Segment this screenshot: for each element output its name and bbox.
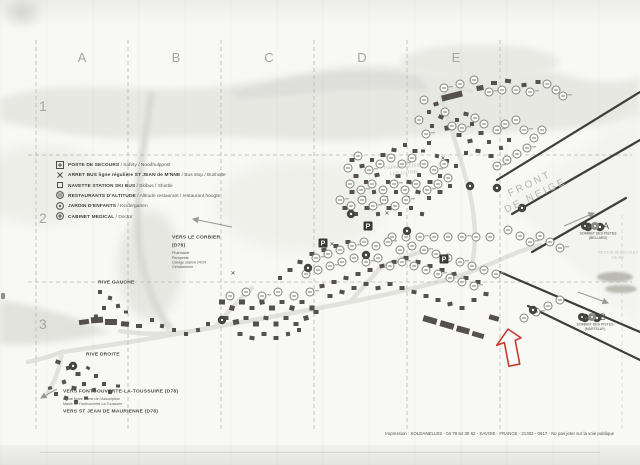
building-footprint [457,133,462,137]
residence-number-smudge [390,236,394,238]
residence-number-smudge [370,183,374,185]
building-footprint [76,372,81,376]
building-footprint [464,151,468,155]
building-footprint [286,332,291,337]
building-footprint [61,379,66,384]
building-footprint [124,311,128,314]
residence-number-smudge [514,89,518,91]
tiny-label-smudge [535,240,539,241]
building-footprint [94,315,98,318]
residence-number-smudge [505,159,509,161]
tiny-label-smudge [443,272,447,273]
legend-label: CABINET MEDICAL / Doctor [68,213,132,218]
grid-letter-b: B [168,50,184,65]
summit-b-caption: SOMMET DES PISTES (MARTELAY) [568,323,623,332]
building-footprint [447,302,453,307]
residence-number-smudge [410,157,414,159]
building-footprint [409,206,413,210]
building-footprint [350,158,355,162]
poi-glyph [350,213,352,215]
residence-number-smudge [400,261,404,263]
parking-letter: P [321,241,326,248]
tiny-label-smudge [315,290,319,291]
residence-number-smudge [404,236,408,238]
building-footprint [487,140,491,144]
residence-number-smudge [434,253,438,255]
residence-number-smudge [554,89,558,91]
residence-number-smudge [424,133,428,135]
summit-a-letter: A [603,221,609,231]
residence-number-smudge [514,119,518,121]
building-footprint [359,164,365,169]
residence-number-smudge [314,257,318,259]
building-footprint [314,310,319,314]
building-footprint [339,290,345,295]
residence-number-smudge [538,235,542,237]
medical-icon [56,212,64,220]
vers-le-corbier-label: VERS LE CORBIER [172,234,220,240]
legend-label: RESTAURANTS D'ALTITUDE / Altitude restau… [68,193,220,198]
building-footprint [244,316,249,320]
residence-number-smudge [414,183,418,185]
grid-letter-a: A [74,50,90,65]
residence-number-smudge [352,257,356,259]
building-footprint [274,336,279,340]
rive-droite-label: RIVE DROITE [86,351,120,357]
residence-number-smudge [450,125,454,127]
building-footprint [300,300,305,304]
residence-number-smudge [393,205,397,207]
bus-stop-cross: ✕ [384,211,389,217]
legend-row-5: CABINET MEDICAL / Doctor [56,212,175,221]
first-aid-icon [56,161,64,169]
building-footprint [421,150,425,153]
residence-number-smudge [446,236,450,238]
building-footprint [294,322,299,326]
building-footprint [219,300,225,305]
residence-number-smudge [389,157,393,159]
building-footprint [196,328,201,333]
residence-number-smudge [506,229,510,231]
residence-number-smudge [376,257,380,259]
building-footprint [438,190,443,194]
building-footprint [424,294,429,298]
building-footprint [98,290,102,294]
restaurant-icon [56,191,64,199]
building-footprint [475,149,481,154]
building-footprint [352,286,357,290]
residence-number-smudge [470,265,474,267]
building-footprint [460,306,465,310]
residence-number-smudge [558,247,562,249]
residence-number-smudge [292,295,296,297]
tiny-label-smudge [432,188,436,189]
residence-number-smudge [472,79,476,81]
building-footprint [332,280,337,284]
building-footprint [310,306,315,311]
building-footprint [354,174,359,178]
residence-number-smudge [460,281,464,283]
residence-number-smudge [500,89,504,91]
building-footprint [400,286,405,290]
residence-number-smudge [316,269,320,271]
building-footprint [491,81,497,85]
poi-glyph [532,309,534,311]
residence-number-smudge [381,189,385,191]
building-footprint [269,306,275,311]
building-footprint [343,276,349,281]
building-footprint [536,80,541,84]
legend-label: JARDIN D'ENFANTS / Kindergarten [68,203,148,208]
residence-number-smudge [412,265,416,267]
poi-glyph [307,267,309,269]
tiny-label-smudge [535,90,539,91]
legend-label: ARRET BUS ligne régulière ST JEAN de M'N… [68,172,226,177]
residence-number-smudge [388,265,392,267]
scanned-resort-map-page: PPP✕✕✕✕ ABCDE123 POSTE DE SECOURS / Safe… [0,0,640,465]
building-footprint [121,321,129,327]
residence-number-smudge [417,119,421,121]
building-footprint [427,196,431,200]
residence-number-smudge [540,129,544,131]
residence-number-smudge [561,95,565,97]
building-footprint [262,332,267,336]
building-footprint [250,306,255,310]
building-footprint [297,260,303,265]
building-footprint [374,173,380,178]
residence-number-smudge [260,295,264,297]
building-footprint [489,154,494,158]
poi-glyph [221,319,223,321]
residence-number-smudge [276,291,280,293]
residence-number-smudge [473,117,477,119]
building-footprint [372,190,377,195]
building-footprint [172,328,176,332]
residence-number-smudge [558,299,562,301]
tiny-label-smudge [439,168,443,169]
residence-number-smudge [244,291,248,293]
building-footprint [391,148,397,153]
building-footprint [303,315,309,321]
grid-letter-d: D [354,50,370,65]
residence-number-smudge [367,169,371,171]
retour-ecoles-label: RETOUR DES ÉCOLES DE SKI [592,251,640,260]
restaurant-icon [578,313,586,321]
vers-st-jean-label: VERS ST JEAN DE MAURIENNE (D78) [63,408,158,414]
tiny-label-smudge [541,310,545,311]
tiny-label-smudge [467,235,471,236]
vers-le-corbier-services: Pharmacie Parapente Garage station 24/24… [172,251,212,270]
residence-number-smudge [532,137,536,139]
building-footprint [376,212,381,217]
building-footprint [253,322,259,327]
building-footprint [489,314,500,322]
tiny-label-smudge [378,204,382,205]
building-footprint [319,284,325,289]
residence-number-smudge [460,236,464,238]
residence-number-smudge [374,245,378,247]
residence-number-smudge [528,91,532,93]
residence-number-smudge [458,261,462,263]
building-footprint [105,319,117,325]
residence-number-smudge [404,199,408,201]
residence-number-smudge [328,265,332,267]
bus-stop-icon [56,171,64,179]
terrain-blob [597,272,633,282]
tiny-label-smudge [565,246,569,247]
poi-glyph [406,230,408,232]
tiny-label-smudge [467,126,471,127]
building-footprint [413,149,418,153]
residence-number-smudge [340,261,344,263]
building-footprint [249,336,255,341]
tiny-label-smudge [502,164,506,165]
building-footprint [206,322,210,326]
residence-number-smudge [482,123,486,125]
building-footprint [108,296,113,301]
tiny-label-smudge [431,132,435,133]
building-footprint [483,292,488,297]
vers-fontcouverte-label: VERS FONTCOUVERTE-LA-TOUSSUIRE (D78) [63,388,178,394]
legend-row-4: JARDIN D'ENFANTS / Kindergarten [56,201,201,210]
building-footprint [507,138,511,142]
vers-le-corbier-block: VERS LE CORBIER (D78) Pharmacie Parapent… [172,234,250,287]
building-footprint [448,184,452,188]
residence-number-smudge [446,177,450,179]
rive-gauche-label: RIVE GAUCHE [98,279,135,285]
building-footprint [86,366,91,371]
residence-number-smudge [356,155,360,157]
residence-number-smudge [382,199,386,201]
residence-number-smudge [448,277,452,279]
residence-number-smudge [346,167,350,169]
building-footprint [229,305,235,311]
residence-number-smudge [443,111,447,113]
building-footprint [428,180,433,184]
building-footprint [436,298,441,302]
residence-number-smudge [403,189,407,191]
lift-icon [588,313,596,321]
residence-number-smudge [503,123,507,125]
tiny-label-smudge [407,260,411,261]
residence-number-smudge [546,305,550,307]
residence-number-smudge [398,249,402,251]
grid-number-3: 3 [39,316,47,332]
tiny-label-smudge [425,235,429,236]
residence-number-smudge [528,241,532,243]
building-footprint [456,325,470,334]
residence-number-smudge [359,189,363,191]
residence-number-smudge [460,127,464,129]
building-footprint [160,324,165,329]
red-annotation-layer [495,328,524,367]
building-footprint [370,158,374,162]
building-footprint [102,306,106,310]
tiny-label-smudge [532,146,536,147]
poi-glyph [72,365,74,367]
residence-number-smudge [487,91,491,93]
building-footprint [479,131,484,135]
building-footprint [499,146,504,151]
residence-number-smudge [410,245,414,247]
building-footprint [278,276,282,280]
poi-glyph [365,254,367,256]
residence-number-smudge [432,169,436,171]
residence-number-smudge [392,183,396,185]
building-footprint [398,212,402,216]
legend-row-2: NAVETTE STATION SKI BUS / Skibus / Shutt… [56,181,242,190]
summit-a-icons: A [581,221,609,231]
residence-number-smudge [362,241,366,243]
building-footprint [472,298,477,302]
building-footprint [427,141,431,145]
building-footprint [297,328,301,332]
residence-number-smudge [522,317,526,319]
parking-letter: P [442,257,447,264]
building-footprint [505,79,511,84]
residence-number-smudge [228,295,232,297]
legend-row-0: POSTE DE SECOURS / Safety / Noodhulppost [56,160,239,169]
parking-letter: P [366,224,371,231]
terrain-blob [605,285,637,293]
poi-glyph [469,185,471,187]
tiny-label-smudge [393,240,397,241]
building-footprint [403,143,407,147]
residence-number-smudge [482,269,486,271]
building-footprint [439,320,454,330]
building-footprint [54,392,58,396]
tiny-label-smudge [411,198,415,199]
residence-number-smudge [304,273,308,275]
building-footprint [438,174,442,178]
residence-number-smudge [422,99,426,101]
residence-number-smudge [338,249,342,251]
building-footprint [239,300,245,305]
building-footprint [467,139,473,144]
building-footprint [102,382,106,386]
residence-number-smudge [308,291,312,293]
tiny-label-smudge [366,188,370,189]
terrain-blob [505,110,640,330]
residence-number-smudge [545,83,549,85]
residence-number-smudge [474,236,478,238]
residence-number-smudge [422,249,426,251]
building-footprint [238,332,243,336]
building-footprint [430,124,434,128]
residence-number-smudge [488,236,492,238]
residence-number-smudge [548,241,552,243]
residence-number-smudge [360,199,364,201]
building-footprint [150,318,154,322]
grid-letter-e: E [448,50,464,65]
tiny-label-smudge [345,198,349,199]
legend-label: NAVETTE STATION SKI BUS / Skibus / Shutt… [68,182,173,187]
building-footprint [289,305,295,311]
residence-number-smudge [518,235,522,237]
building-footprint [454,164,458,168]
residence-number-smudge [338,199,342,201]
building-footprint [116,304,121,309]
building-footprint [263,316,269,321]
building-footprint [350,190,355,194]
shuttle-icon [56,181,64,189]
residence-number-smudge [432,236,436,238]
residence-number-smudge [424,269,428,271]
residence-number-smudge [378,163,382,165]
building-footprint [406,180,412,185]
lift-icon [591,222,599,230]
building-footprint [136,324,142,328]
residence-number-smudge [442,163,446,165]
residence-number-smudge [525,147,529,149]
residence-number-smudge [494,273,498,275]
building-footprint [427,110,431,114]
terrain-blob [400,44,560,80]
residence-number-smudge [458,83,462,85]
summit-a-caption: SOMMET DES PISTES (BELLARD) [571,232,626,241]
building-footprint [388,282,393,286]
tiny-label-smudge [399,182,403,183]
building-footprint [364,180,368,184]
residence-number-smudge [495,165,499,167]
building-footprint [470,122,474,126]
residence-number-smudge [386,241,390,243]
building-footprint [375,286,381,291]
scan-edge-speck [1,293,5,299]
building-footprint [91,317,103,324]
residence-number-smudge [522,129,526,131]
building-footprint [411,290,417,295]
residence-number-smudge [349,205,353,207]
building-footprint [284,316,289,320]
tiny-label-smudge [529,128,533,129]
building-footprint [394,190,398,194]
building-footprint [435,154,440,159]
red-annotation-arrow [495,328,524,367]
legend-row-1: ARRET BUS ligne régulière ST JEAN de M'N… [56,170,331,179]
residence-number-smudge [348,183,352,185]
tiny-label-smudge [449,86,453,87]
building-footprint [381,153,386,157]
residence-number-smudge [326,253,330,255]
residence-number-smudge [495,129,499,131]
kindergarten-icon [56,202,64,210]
building-footprint [386,180,390,184]
tiny-label-smudge [465,260,469,261]
building-footprint [274,322,279,327]
legend-row-3: RESTAURANTS D'ALTITUDE / Altitude restau… [56,191,322,200]
vers-le-corbier-road: (D78) [172,242,220,248]
building-footprint [455,118,459,122]
grid-number-1: 1 [39,98,47,114]
bus-stop-cross: ✕ [329,242,334,248]
tiny-label-smudge [501,272,505,273]
building-footprint [328,294,333,298]
building-footprint [94,374,98,378]
tiny-label-smudge [374,168,378,169]
building-footprint [368,268,373,272]
tiny-label-smudge [479,284,483,285]
printer-footer-text: Impression : SOLDANELLES - 04 79 64 30 6… [385,431,614,436]
residence-number-smudge [436,183,440,185]
tiny-label-smudge [267,294,271,295]
grid-letter-c: C [261,50,277,65]
bus-stop-cross: ✕ [440,156,445,162]
residence-number-smudge [371,205,375,207]
residence-number-smudge [364,261,368,263]
tiny-label-smudge [494,90,498,91]
summit-b-letter: B [600,312,606,322]
